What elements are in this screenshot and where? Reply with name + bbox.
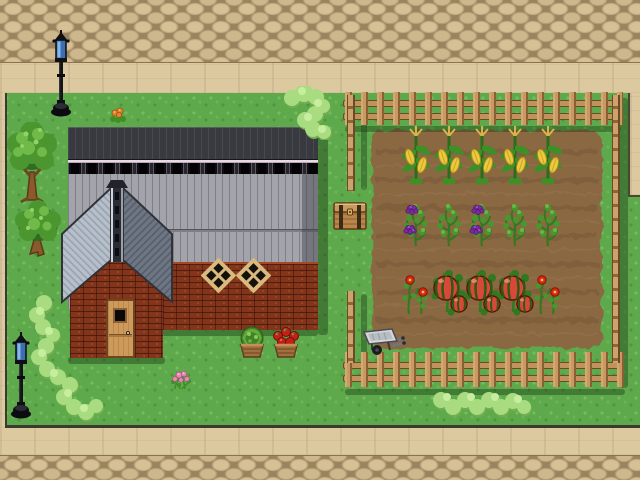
cabbage-barrel[interactable] (237, 325, 267, 359)
crop-corn-tasseled[interactable] (498, 124, 532, 186)
crop-corn-tasseled[interactable] (465, 124, 499, 186)
crop-corn-tasseled[interactable] (399, 124, 433, 186)
pink-flowers (167, 367, 195, 391)
crop-grape-vine-ripe[interactable] (401, 200, 431, 248)
tree-small (14, 200, 62, 258)
street-lamp (49, 30, 73, 118)
crop-grape-vine-unripe[interactable] (533, 200, 563, 248)
street-lamp (9, 332, 33, 420)
game-map (0, 0, 640, 480)
crop-corn-tasseled[interactable] (432, 124, 466, 186)
crop-grape-vine-unripe[interactable] (500, 200, 530, 248)
crop-tomato-flowering[interactable] (533, 270, 563, 316)
wheelbarrow[interactable] (362, 324, 406, 356)
crop-tomato-fruiting[interactable] (495, 266, 535, 316)
crop-grape-vine-unripe[interactable] (434, 200, 464, 248)
crop-tomato-flowering[interactable] (401, 270, 431, 316)
crop-corn-tasseled[interactable] (531, 124, 565, 186)
orange-flower (108, 105, 128, 123)
tree-large (6, 122, 58, 206)
crop-grape-vine-ripe[interactable] (467, 200, 497, 248)
objects-layer (0, 0, 640, 480)
apple-basket[interactable] (270, 323, 302, 359)
wooden-chest[interactable] (333, 201, 367, 231)
